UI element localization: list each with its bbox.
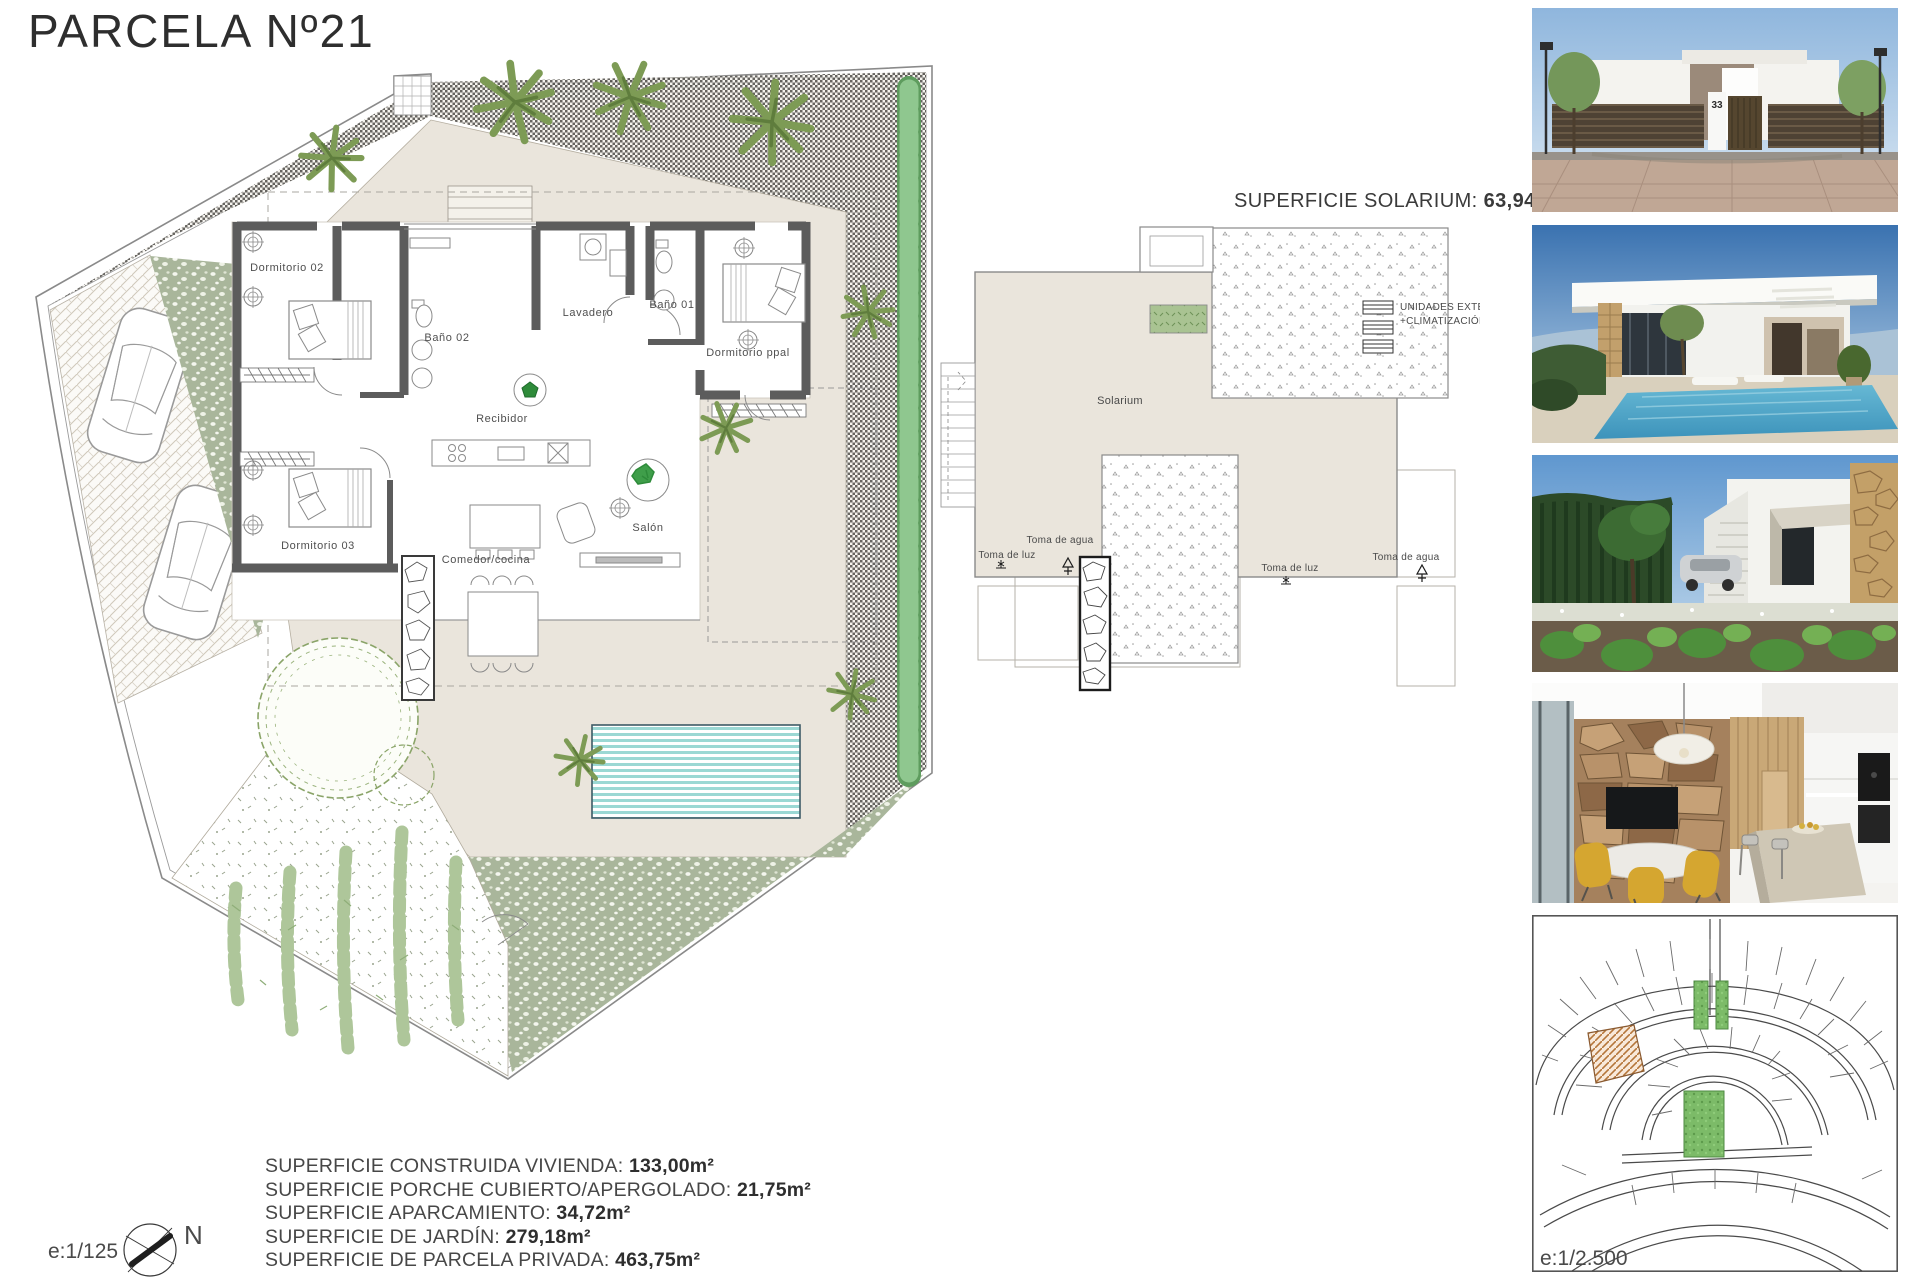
room-label: Recibidor <box>476 413 528 425</box>
area-line: SUPERFICIE DE PARCELA PRIVADA: 463,75m² <box>265 1249 811 1273</box>
ac-label-line2: +CLIMATIZACIÓN <box>1400 314 1480 327</box>
room-label: Baño 01 <box>649 299 694 311</box>
area-value: 133,00m² <box>629 1155 714 1177</box>
water-supply-label: Toma de agua <box>1373 552 1440 563</box>
room-label: Dormitorio ppal <box>706 347 790 359</box>
site-green-strip <box>1716 981 1728 1029</box>
solarium-plan: UNIDADES EXTERIORES +CLIMATIZACIÓN Solar… <box>900 180 1480 700</box>
ac-unit-icon <box>1363 301 1393 353</box>
site-green-strip <box>1694 981 1708 1029</box>
area-value: 463,75m² <box>615 1249 700 1271</box>
large-tree <box>258 638 418 798</box>
light-supply-label: Toma de luz <box>1261 563 1318 574</box>
site-green-area <box>1684 1091 1724 1157</box>
room-label: Baño 02 <box>424 332 469 344</box>
north-label: N <box>184 1220 203 1250</box>
area-value: 279,18m² <box>506 1226 591 1248</box>
area-value: 21,75m² <box>737 1179 811 1201</box>
photo-villa-pool <box>1532 225 1898 443</box>
plan-sheet: PARCELA Nº21 <box>0 0 1920 1280</box>
water-supply-label: Toma de agua <box>1027 535 1094 546</box>
stone-wall <box>402 556 434 700</box>
photo-kitchen-interior <box>1532 683 1898 903</box>
ac-gravel-area: UNIDADES EXTERIORES +CLIMATIZACIÓN <box>1212 228 1480 398</box>
area-label: SUPERFICIE DE PARCELA PRIVADA: <box>265 1249 615 1271</box>
compass-needle-icon <box>132 1236 170 1264</box>
room-label: Comedor/cocina <box>442 554 531 566</box>
solarium-room-label: Solarium <box>1097 395 1143 407</box>
main-floor-plan: Dormitorio 02 Baño 02 Lavadero Baño 01 D… <box>0 0 1000 1100</box>
stone-pillar <box>1080 557 1110 690</box>
photo-garden-view <box>1532 455 1898 672</box>
room-label: Lavadero <box>563 307 614 319</box>
gravel-court <box>1102 455 1238 663</box>
north-compass: N <box>108 1214 228 1280</box>
ac-label-line1: UNIDADES EXTERIORES <box>1400 302 1480 313</box>
area-label: SUPERFICIE CONSTRUIDA VIVIENDA: <box>265 1155 629 1177</box>
area-line: SUPERFICIE PORCHE CUBIERTO/APERGOLADO: 2… <box>265 1179 811 1203</box>
surface-areas: SUPERFICIE CONSTRUIDA VIVIENDA: 133,00m²… <box>265 1155 811 1273</box>
light-supply-label: Toma de luz <box>978 550 1035 561</box>
room-label: Salón <box>632 522 663 534</box>
photo-street-elevation: 33 <box>1532 8 1898 212</box>
area-label: SUPERFICIE DE JARDÍN: <box>265 1226 506 1248</box>
area-line: SUPERFICIE DE JARDÍN: 279,18m² <box>265 1226 811 1250</box>
site-plan-scale: e:1/2.500 <box>1540 1247 1628 1270</box>
area-line: SUPERFICIE CONSTRUIDA VIVIENDA: 133,00m² <box>265 1155 811 1179</box>
house-number: 33 <box>1711 100 1723 111</box>
photo-site-plan: e:1/2.500 <box>1532 915 1898 1272</box>
area-line: SUPERFICIE APARCAMIENTO: 34,72m² <box>265 1202 811 1226</box>
room-label: Dormitorio 02 <box>250 262 324 274</box>
area-value: 34,72m² <box>556 1202 630 1224</box>
area-label: SUPERFICIE PORCHE CUBIERTO/APERGOLADO: <box>265 1179 737 1201</box>
pool <box>592 725 800 818</box>
area-label: SUPERFICIE APARCAMIENTO: <box>265 1202 556 1224</box>
planter <box>1150 305 1207 333</box>
solarium-stairs <box>941 363 975 507</box>
room-label: Dormitorio 03 <box>281 540 355 552</box>
